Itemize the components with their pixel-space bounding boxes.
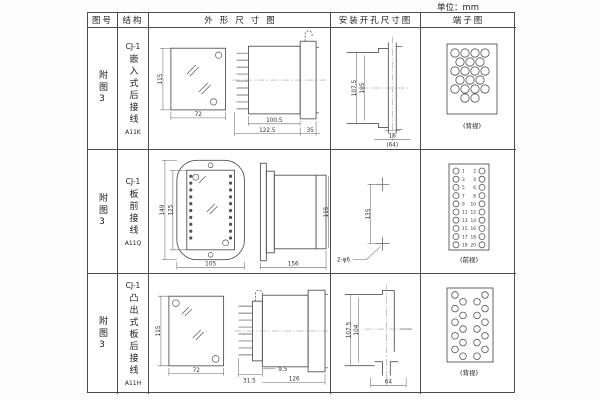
terminal-caption-row1: (背视) <box>463 121 481 130</box>
structure-row3: CJ-1 凸出式板后接线 A11H <box>118 274 149 394</box>
model-row2: A11Q <box>125 240 141 247</box>
spec-sheet-page: 单位：mm 图号 结构 外形尺寸图 安装开孔尺寸图 端子图 附图3 CJ-1 嵌… <box>0 0 600 400</box>
dim-label: 72 <box>193 368 201 374</box>
terminal-svg-row1: (背视) <box>421 28 516 150</box>
fig-no-row1: 附图3 <box>88 28 118 150</box>
mounting-drawing-row2: 135 2-φ6 <box>331 150 421 274</box>
spec-table: 图号 结构 外形尺寸图 安装开孔尺寸图 端子图 附图3 CJ-1 嵌入式后接线 … <box>87 12 515 393</box>
mounting-svg-row1: 107.5 105 16 (64) <box>331 28 420 150</box>
outline-drawing-row2: 149 125 105 156 115 <box>149 150 331 274</box>
dim-label: 105 <box>360 82 366 93</box>
mounting-drawing-row3: 107.5 104 64 <box>331 274 421 394</box>
dim-label: 35 <box>306 127 314 133</box>
dim-label: 107.5 <box>346 321 352 338</box>
dim-label: 104 <box>354 324 360 335</box>
fig-no-row2-label: 附图3 <box>96 193 109 230</box>
svg-text:8: 8 <box>473 193 476 199</box>
terminal-pins-back-view <box>452 292 489 360</box>
terminal-caption-row3: (背视) <box>460 368 478 377</box>
svg-text:17: 17 <box>462 234 468 240</box>
dim-label: 115 <box>156 325 162 336</box>
series-row3: CJ-1 <box>126 281 141 290</box>
fig-no-row1-label: 附图3 <box>96 70 109 107</box>
svg-text:5: 5 <box>462 185 465 191</box>
series-row1: CJ-1 <box>126 42 141 51</box>
dim-label: 125 <box>168 204 174 215</box>
hole-note-label: 2-φ6 <box>337 257 350 263</box>
svg-text:20: 20 <box>471 242 477 248</box>
dim-label: 126 <box>289 377 300 383</box>
structure-row1-label: 嵌入式后接线 <box>127 54 140 126</box>
fig-no-row3: 附图3 <box>88 274 118 394</box>
terminal-svg-row2: 1357911131517192468101214161820 (前视) <box>421 150 516 274</box>
structure-row2: CJ-1 板前接线 A11Q <box>118 150 149 274</box>
terminal-pins-front-view: 1357911131517192468101214161820 <box>453 168 485 249</box>
dim-label: 72 <box>195 111 203 117</box>
outline-drawing-row3: 115 72 31.5 9.5 126 <box>149 274 331 394</box>
model-row1: A11K <box>125 129 141 136</box>
svg-text:1: 1 <box>462 168 465 174</box>
terminal-caption-row2: (前视) <box>460 255 478 264</box>
outline-svg-row1: 115 72 100.5 122.5 35 <box>149 28 330 150</box>
dim-label: (64) <box>386 142 398 148</box>
dim-label: 105 <box>205 261 216 267</box>
svg-text:10: 10 <box>471 201 477 207</box>
header-outline-label: 外形尺寸图 <box>204 14 282 26</box>
svg-text:4: 4 <box>473 176 476 182</box>
dim-label: 107.5 <box>352 79 358 96</box>
svg-text:7: 7 <box>462 193 465 199</box>
structure-row1: CJ-1 嵌入式后接线 A11K <box>118 28 149 150</box>
svg-text:16: 16 <box>471 226 477 232</box>
terminal-svg-row3: (背视) <box>421 274 516 394</box>
svg-text:3: 3 <box>462 176 465 182</box>
dim-label: 31.5 <box>243 379 256 385</box>
mounting-svg-row3: 107.5 104 64 <box>331 274 420 394</box>
header-mounting: 安装开孔尺寸图 <box>331 13 421 28</box>
header-terminal: 端子图 <box>421 13 516 28</box>
svg-text:6: 6 <box>473 185 476 191</box>
terminal-pins-back-view <box>451 48 489 101</box>
dim-label: 115 <box>158 73 164 84</box>
dim-label: 100.5 <box>266 117 283 123</box>
outline-svg-row3: 115 72 31.5 9.5 126 <box>149 274 330 394</box>
svg-text:2: 2 <box>473 168 476 174</box>
svg-text:14: 14 <box>471 217 477 223</box>
dim-label: 156 <box>288 261 299 267</box>
mounting-drawing-row1: 107.5 105 16 (64) <box>331 28 421 150</box>
series-row2: CJ-1 <box>126 177 141 186</box>
fig-no-row3-label: 附图3 <box>96 316 109 353</box>
structure-row3-label: 凸出式板后接线 <box>126 293 139 377</box>
svg-text:9: 9 <box>462 201 465 207</box>
dim-label: 135 <box>366 208 372 219</box>
model-row3: A11H <box>125 380 141 387</box>
outline-drawing-row1: 115 72 100.5 122.5 35 <box>149 28 331 150</box>
header-structure: 结构 <box>118 13 149 28</box>
svg-text:13: 13 <box>462 217 468 223</box>
outline-svg-row2: 149 125 105 156 115 <box>149 150 330 274</box>
header-fig-no: 图号 <box>88 13 118 28</box>
svg-text:18: 18 <box>471 234 477 240</box>
terminal-drawing-row2: 1357911131517192468101214161820 (前视) <box>421 150 516 274</box>
dim-label: 16 <box>389 133 397 139</box>
structure-row2-label: 板前接线 <box>127 189 140 237</box>
terminal-drawing-row3: (背视) <box>421 274 516 394</box>
svg-text:15: 15 <box>462 226 468 232</box>
dim-label: 149 <box>160 204 166 215</box>
terminal-drawing-row1: (背视) <box>421 28 516 150</box>
dim-label: 122.5 <box>259 127 276 133</box>
svg-text:19: 19 <box>462 242 468 248</box>
header-outline: 外形尺寸图 <box>149 13 331 28</box>
svg-text:12: 12 <box>471 209 477 215</box>
dim-label: 9.5 <box>278 367 287 373</box>
dim-label: 64 <box>385 379 393 385</box>
svg-text:11: 11 <box>462 209 468 215</box>
mounting-svg-row2: 135 2-φ6 <box>331 150 420 274</box>
dim-label: 115 <box>324 206 330 217</box>
fig-no-row2: 附图3 <box>88 150 118 274</box>
